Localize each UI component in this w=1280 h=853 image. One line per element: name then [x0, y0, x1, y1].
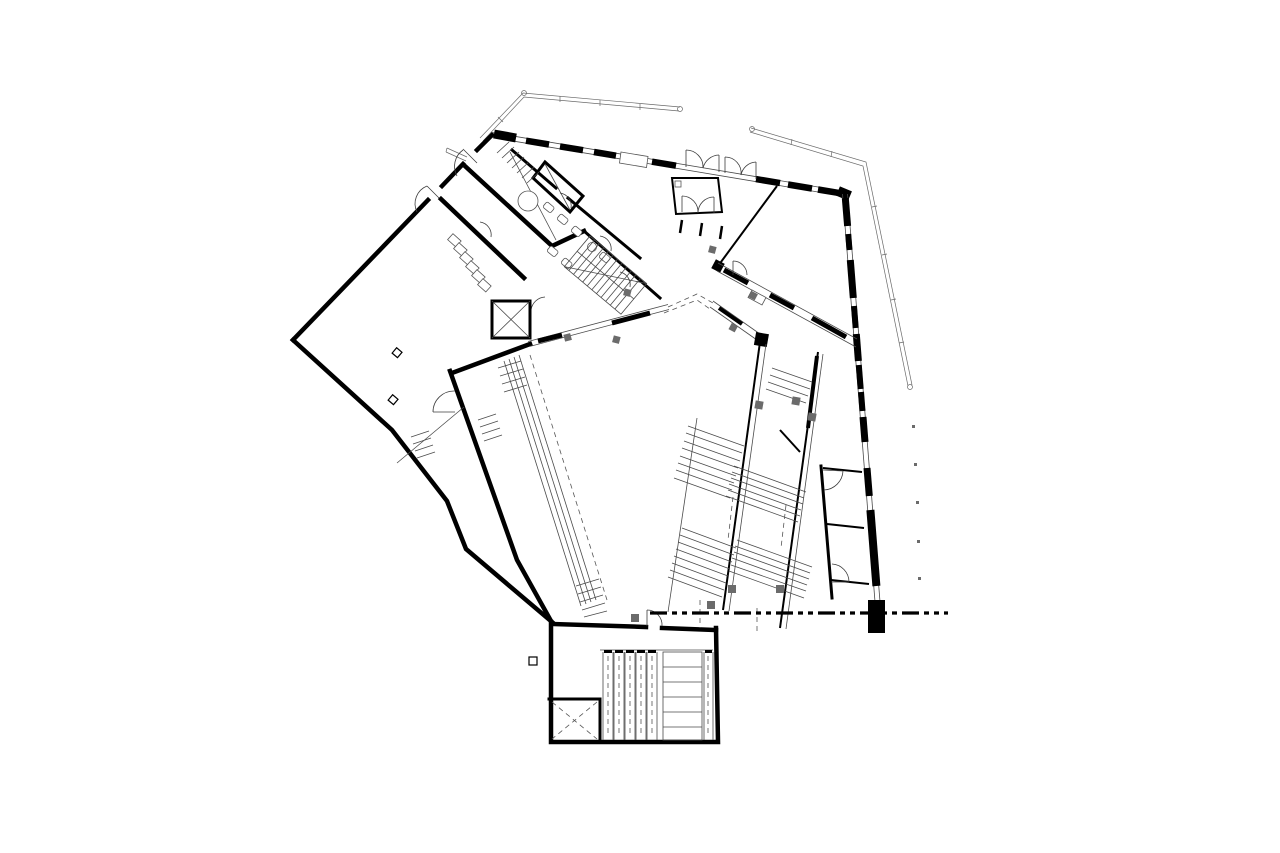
paper-background	[0, 0, 1280, 853]
floor-plan-page	[0, 0, 1280, 853]
floor-plan-svg	[0, 0, 1280, 853]
section-pier	[868, 600, 885, 633]
